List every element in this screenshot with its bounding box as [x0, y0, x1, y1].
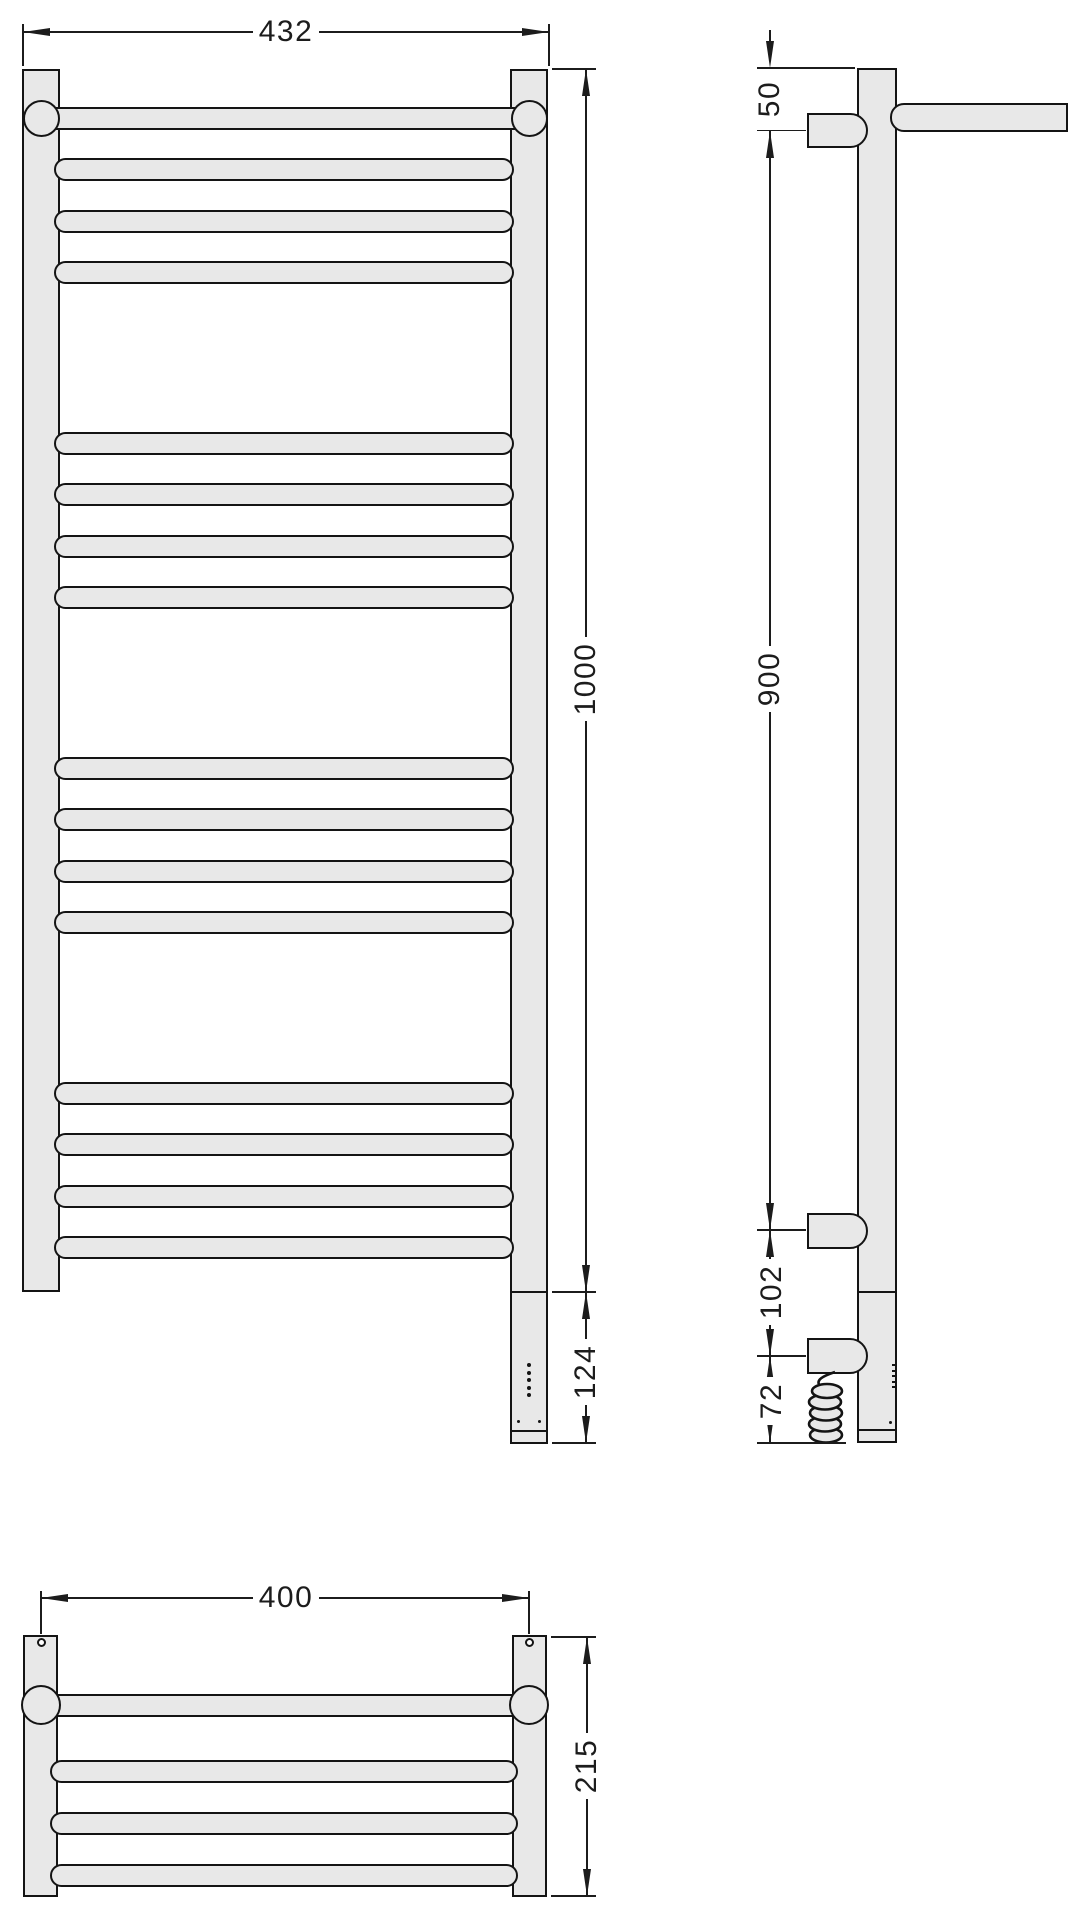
heater-led-tick: [892, 1386, 897, 1388]
arrow-down: [583, 1869, 591, 1896]
dim-label: 900: [753, 646, 787, 712]
arrow-up: [766, 1230, 774, 1257]
arrow-down: [582, 1416, 590, 1443]
shelf-bar-top: [41, 1694, 529, 1717]
towel-bar: [54, 483, 514, 506]
heater-led-dot: [527, 1363, 531, 1367]
arrow-up: [582, 69, 590, 96]
dim-label: 50: [753, 75, 787, 123]
shelf-bar: [50, 1812, 518, 1835]
shelf-bar: [50, 1760, 518, 1783]
wall-bracket-lower: [807, 1213, 868, 1249]
left-collector-joint: [23, 100, 60, 137]
dim-label: 72: [755, 1377, 789, 1425]
towel-bar: [54, 757, 514, 780]
heater-screw-dot: [538, 1420, 541, 1423]
right-collector-joint: [511, 100, 548, 137]
dim-label: 400: [253, 1581, 319, 1615]
heater-led-tick: [892, 1370, 897, 1372]
dim-label: 432: [253, 15, 319, 49]
towel-bar: [54, 911, 514, 934]
towel-bar: [54, 808, 514, 831]
arrow-left: [41, 1594, 68, 1602]
shelf-bar-side-profile: [890, 103, 1068, 132]
dim-label: 215: [570, 1733, 604, 1799]
bottom-right-post: [512, 1635, 547, 1897]
arrow-up: [766, 131, 774, 158]
right-collector-joint: [509, 1685, 549, 1725]
arrow-right: [522, 28, 549, 36]
towel-bar: [54, 1133, 514, 1156]
arrow-down: [582, 1265, 590, 1292]
towel-bar: [54, 535, 514, 558]
coiled-cable: [803, 1371, 855, 1445]
arrow-down: [766, 1329, 774, 1356]
towel-bar: [54, 1236, 514, 1259]
towel-bar: [54, 1082, 514, 1105]
arrow-left: [23, 28, 50, 36]
heater-led-tick: [892, 1381, 897, 1383]
heater-led-tick: [892, 1375, 897, 1377]
arrow-down: [766, 1203, 774, 1230]
arrow-up: [582, 1292, 590, 1319]
mounting-hole: [37, 1638, 46, 1647]
dim-label: 1000: [569, 637, 603, 721]
shelf-bar: [50, 1864, 518, 1887]
dim-label: 124: [569, 1339, 603, 1405]
heater-end-cap-line: [510, 1430, 548, 1433]
towel-bar: [54, 586, 514, 609]
heater-housing-top-line: [510, 1291, 548, 1294]
extension-line: [757, 130, 806, 132]
wall-bracket-upper: [807, 113, 868, 148]
front-left-post: [22, 69, 60, 1292]
arrow-up: [583, 1637, 591, 1664]
arrow-right: [502, 1594, 529, 1602]
heater-led-dot: [527, 1371, 531, 1375]
heater-led-dot: [527, 1393, 531, 1397]
heater-housing-top-line: [857, 1291, 897, 1294]
extension-line: [757, 1229, 806, 1231]
towel-bar: [54, 210, 514, 233]
towel-bar: [54, 860, 514, 883]
towel-bar: [54, 1185, 514, 1208]
extension-line: [757, 1355, 806, 1357]
towel-bar: [54, 158, 514, 181]
towel-bar-top: [41, 107, 529, 130]
heater-screw-dot: [889, 1421, 892, 1424]
heater-led-dot: [527, 1378, 531, 1382]
mounting-hole: [525, 1638, 534, 1647]
dim-label: 102: [755, 1259, 789, 1325]
towel-bar: [54, 432, 514, 455]
heater-cable-bracket: [807, 1338, 868, 1374]
front-right-post-with-heater: [510, 69, 548, 1444]
drawing-canvas: 432 1000 124: [0, 0, 1089, 1920]
heater-led-dot: [527, 1386, 531, 1390]
heater-led-tick: [892, 1364, 897, 1366]
heater-end-cap-line: [857, 1429, 897, 1432]
towel-bar: [54, 261, 514, 284]
heater-screw-dot: [517, 1420, 520, 1423]
arrow-down: [766, 41, 774, 68]
left-collector-joint: [21, 1685, 61, 1725]
